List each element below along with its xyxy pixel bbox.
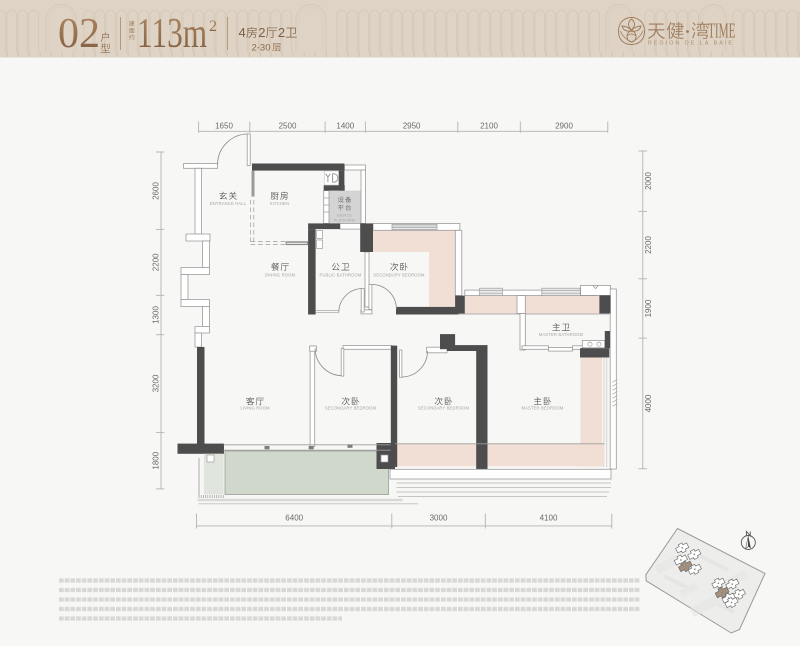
svg-text:3200: 3200 [152, 374, 161, 392]
svg-text:MASTER BEDROOM: MASTER BEDROOM [522, 405, 564, 410]
svg-text:DEVICE: DEVICE [337, 214, 352, 218]
svg-text:2200: 2200 [152, 253, 161, 271]
svg-text:MASTER BATHROOM: MASTER BATHROOM [539, 332, 584, 337]
svg-text:2950: 2950 [403, 121, 421, 130]
svg-text:4100: 4100 [540, 514, 558, 523]
svg-text:SECONDARY BEDROOM: SECONDARY BEDROOM [325, 405, 377, 410]
svg-text:KITCHEN: KITCHEN [270, 201, 289, 206]
svg-text:3000: 3000 [430, 514, 448, 523]
svg-text:PLATFORM: PLATFORM [334, 219, 356, 223]
svg-text:6400: 6400 [285, 514, 303, 523]
svg-text:2200: 2200 [644, 236, 653, 254]
svg-text:2: 2 [209, 18, 217, 35]
svg-text:LIVING ROOM: LIVING ROOM [240, 405, 270, 410]
svg-text:1400: 1400 [336, 121, 354, 130]
svg-text:1650: 1650 [215, 121, 233, 130]
svg-text:SECONDARY BEDROOM: SECONDARY BEDROOM [418, 405, 470, 410]
svg-text:ENTRANCE HALL: ENTRANCE HALL [210, 201, 247, 206]
svg-text:4000: 4000 [644, 394, 653, 412]
svg-text:2100: 2100 [480, 121, 498, 130]
svg-text:2-30: 2-30 [251, 43, 270, 54]
svg-text:2900: 2900 [555, 121, 573, 130]
svg-text:1800: 1800 [152, 451, 161, 469]
svg-text:RÉGION DE LA BAIE: RÉGION DE LA BAIE [648, 40, 734, 47]
svg-text:02: 02 [58, 11, 100, 57]
svg-text:2000: 2000 [644, 172, 653, 190]
svg-text:TIME: TIME [708, 19, 736, 43]
svg-text:PUBLIC BATHROOM: PUBLIC BATHROOM [320, 272, 362, 277]
svg-text:2: 2 [258, 25, 265, 40]
svg-text:1900: 1900 [644, 299, 653, 317]
svg-text:2: 2 [278, 25, 285, 40]
svg-text:1300: 1300 [152, 306, 161, 324]
svg-text:2500: 2500 [279, 121, 297, 130]
svg-text:SECONDARY BEDROOM: SECONDARY BEDROOM [373, 272, 425, 277]
svg-text:4: 4 [239, 25, 246, 40]
svg-text:DINING ROOM: DINING ROOM [265, 272, 296, 277]
svg-text:2600: 2600 [152, 182, 161, 200]
svg-text:113m: 113m [137, 11, 207, 57]
